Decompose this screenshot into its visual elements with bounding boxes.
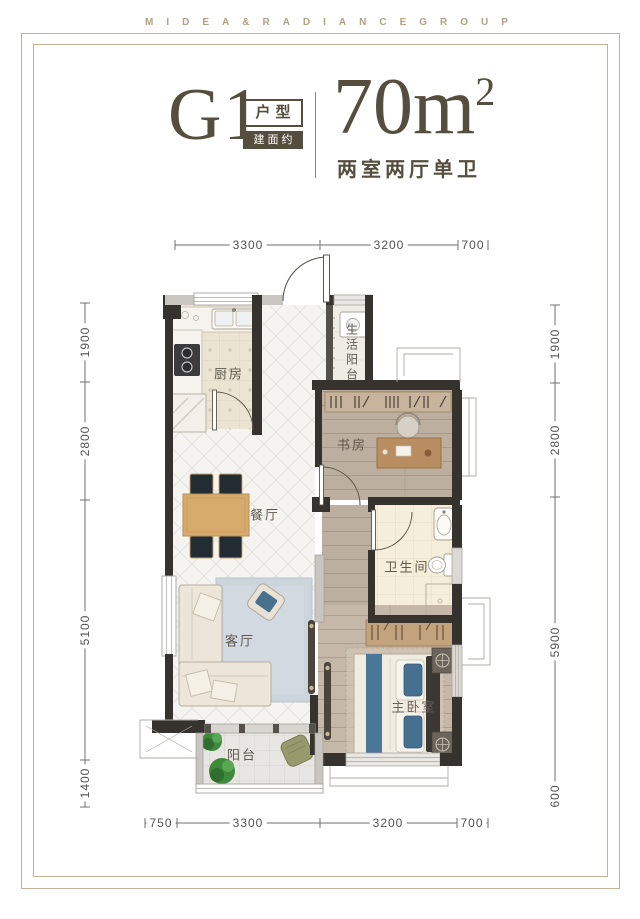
floorplan-drawing — [0, 0, 640, 919]
dim-left-2: 2800 — [78, 423, 92, 460]
dim-right-2: 2800 — [548, 422, 562, 459]
room-label-master: 主卧室 — [391, 697, 436, 716]
dim-top-3: 700 — [458, 238, 487, 252]
dim-top-2: 3200 — [371, 238, 408, 252]
dim-bottom-4: 700 — [457, 816, 486, 830]
room-label-dining: 餐厅 — [250, 505, 280, 524]
dim-left-3: 5100 — [78, 612, 92, 649]
dim-right-4: 600 — [548, 781, 562, 810]
room-label-kitchen: 厨房 — [214, 364, 244, 383]
dim-bottom-1: 750 — [146, 816, 175, 830]
dim-left-1: 1900 — [78, 324, 92, 361]
room-label-bathroom: 卫生间 — [384, 557, 429, 576]
dim-left-4: 1400 — [78, 765, 92, 802]
floorplan-page: MIDEA&RADIANCEGROUP G1 户型 建面约 70m2 两室两厅单… — [0, 0, 640, 919]
dim-top-1: 3300 — [230, 238, 267, 252]
dim-right-3: 5900 — [548, 624, 562, 661]
dim-bottom-3: 3200 — [370, 816, 407, 830]
room-label-study: 书房 — [337, 435, 367, 454]
room-label-living: 客厅 — [225, 631, 255, 650]
dim-right-1: 1900 — [548, 326, 562, 363]
room-label-service-balcony: 生活阳台 — [344, 323, 361, 383]
room-label-balcony: 阳台 — [227, 745, 257, 764]
dim-bottom-2: 3300 — [230, 816, 267, 830]
